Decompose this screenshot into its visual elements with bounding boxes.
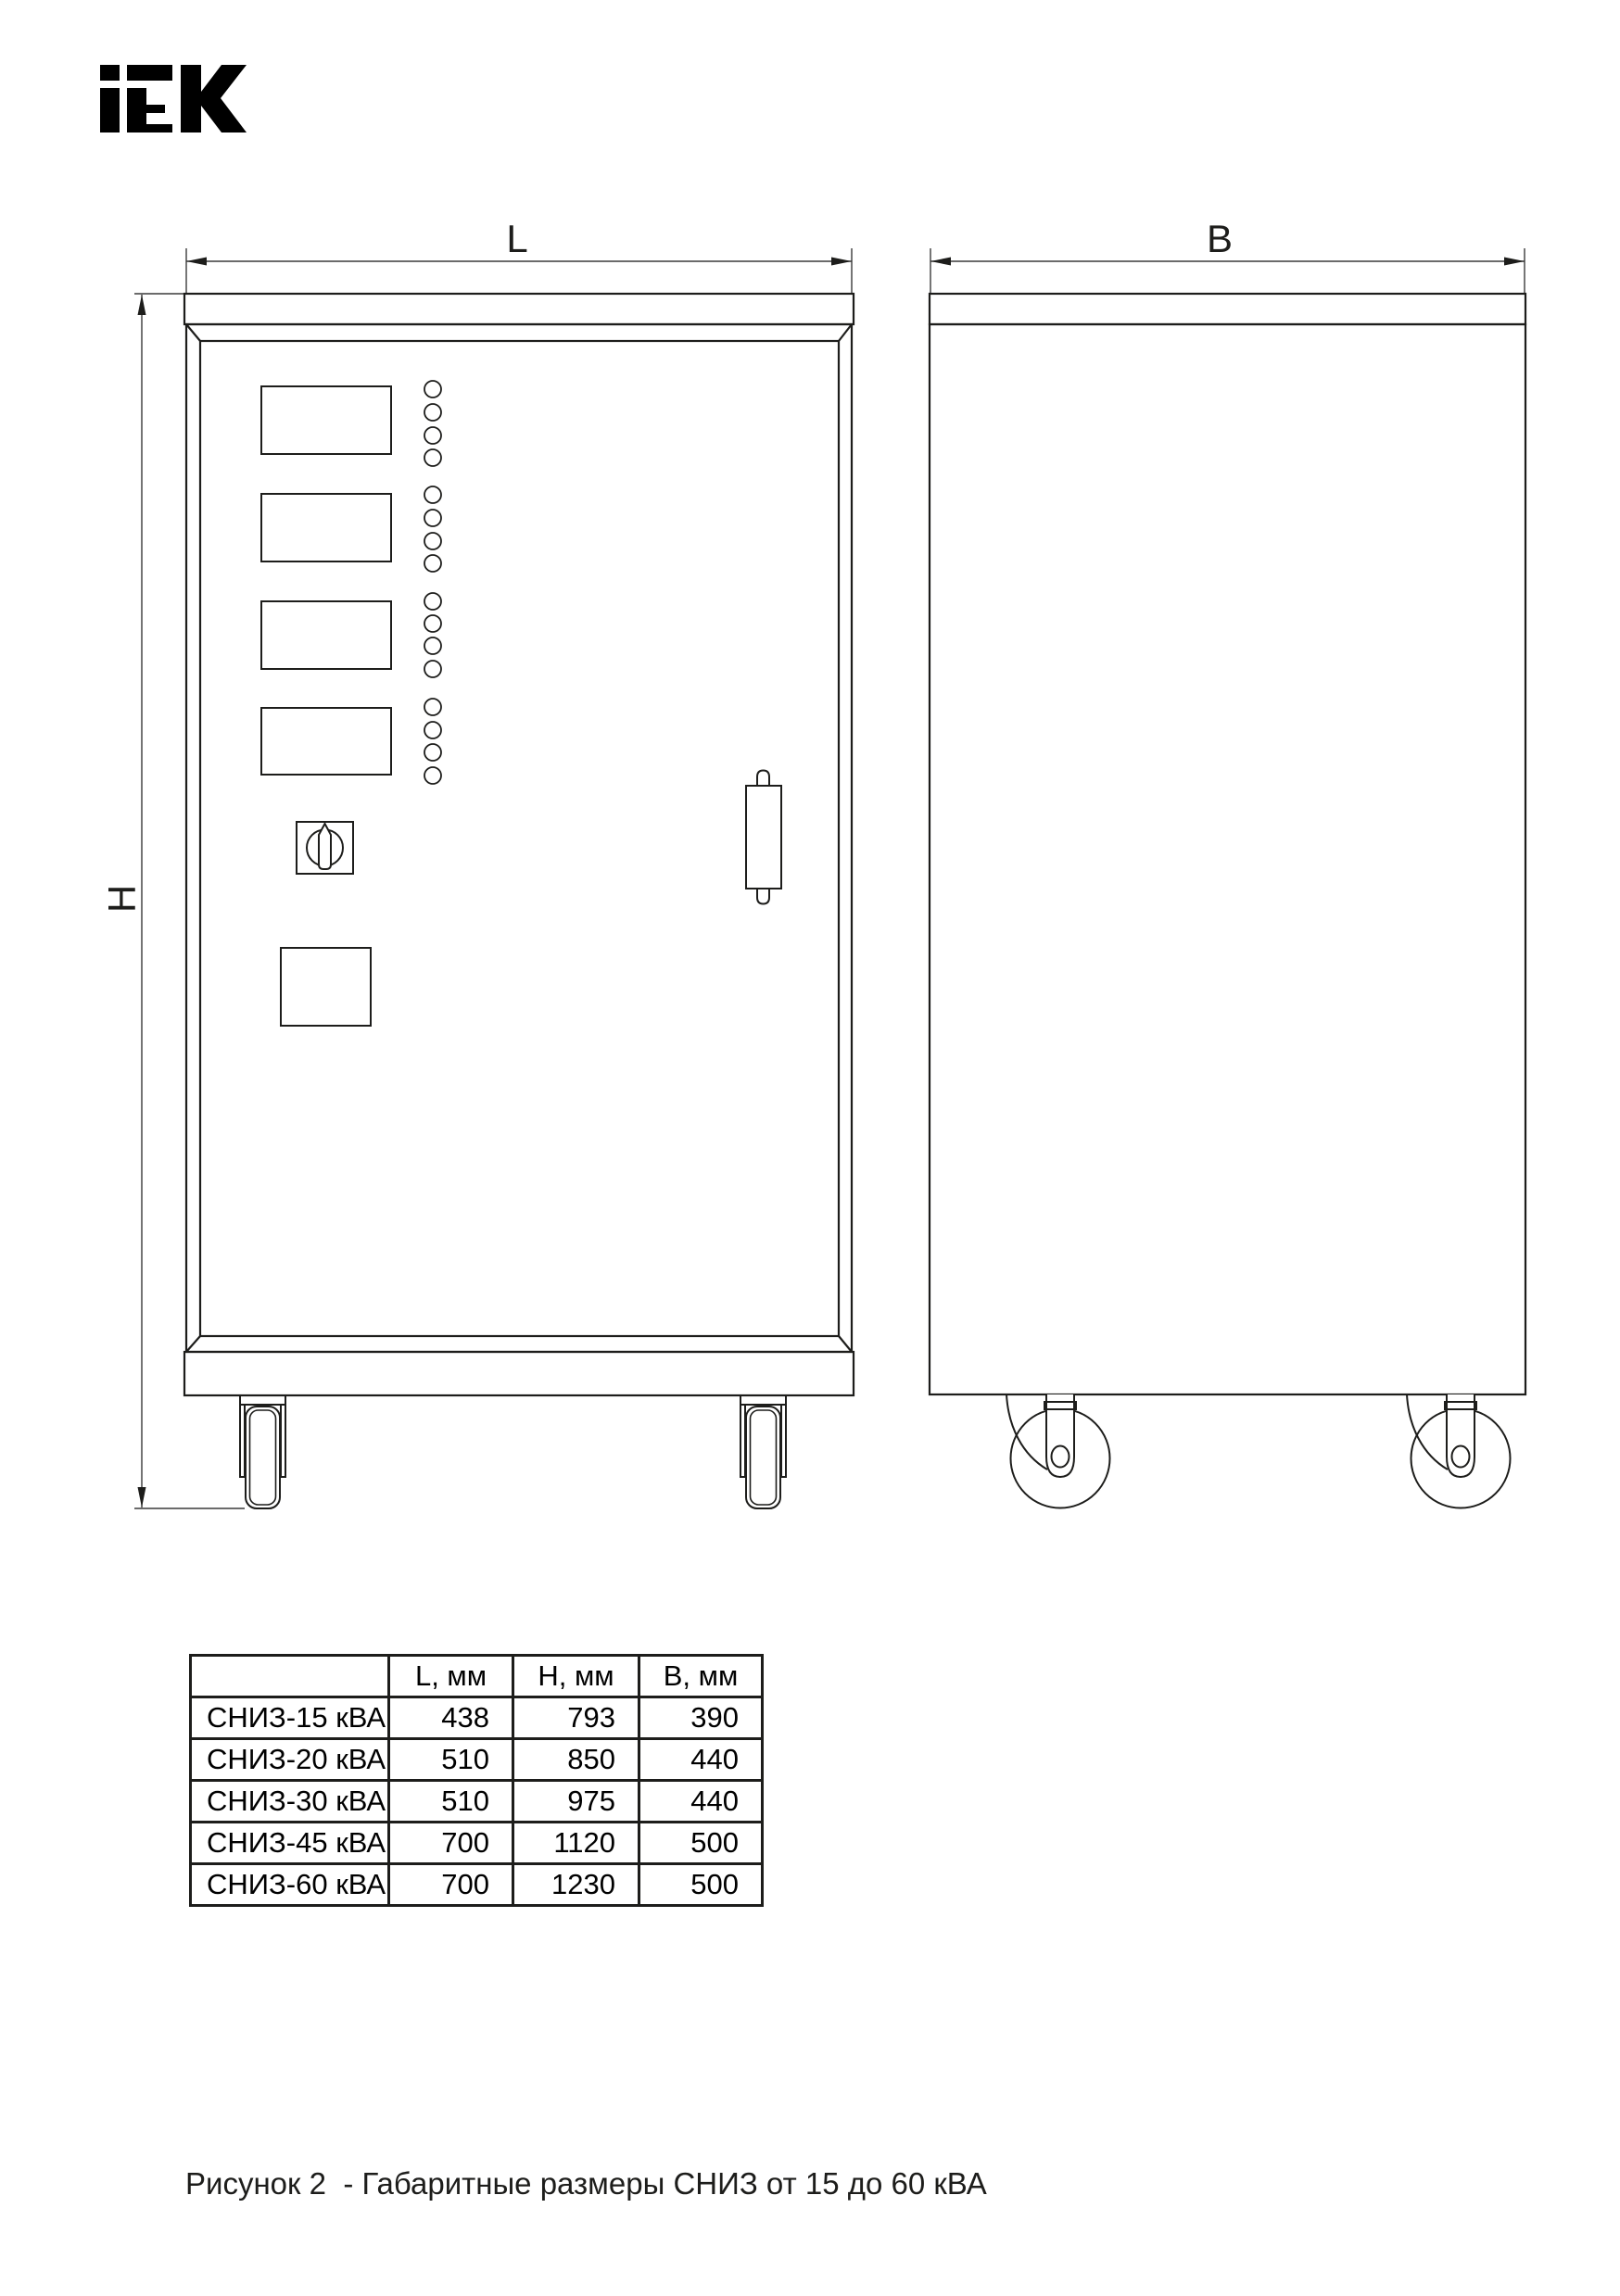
logo-i-dot [100,65,120,81]
l-value-cell: 510 [389,1781,513,1823]
frame-miter-bottom-left [186,1336,200,1352]
front-caster-left [240,1395,285,1508]
caster-axle [1052,1446,1069,1468]
table-header-row: L, мм H, мм B, мм [191,1656,763,1697]
caster-wheel [246,1407,280,1508]
led-indicator [424,699,441,715]
dimensions-table: L, мм H, мм B, мм СНИЗ-15 кВА 438 793 39… [189,1654,764,1907]
width-dimension: B [930,217,1525,293]
b-arrow-left [930,258,951,266]
front-top-cap [184,294,854,324]
caster-fork-leg [781,1405,786,1477]
logo-k [181,65,247,132]
technical-drawing-page: L B H [0,0,1620,2296]
led-indicator [424,637,441,654]
h-arrow-top [138,295,146,315]
table-row: СНИЗ-30 кВА 510 975 440 [191,1781,763,1823]
door-handle-top-tab [757,771,769,788]
dimension-drawing: L B H [0,0,1620,1575]
breaker-window-4 [261,708,391,775]
logo-i-stem [100,88,120,132]
caster-wheel [746,1407,780,1508]
breaker-windows [261,386,391,775]
height-label: H [100,885,144,913]
table-row: СНИЗ-60 кВА 700 1230 500 [191,1864,763,1906]
side-body [930,324,1525,1394]
side-caster-right [1407,1394,1511,1508]
l-arrow-left [186,258,207,266]
col-header-l: L, мм [389,1656,513,1697]
b-arrow-right [1504,258,1525,266]
frame-miter-top-right [839,324,852,341]
caster-fork-leg [281,1405,285,1477]
rotary-switch-knob [319,824,331,869]
led-indicator [424,533,441,549]
b-value-cell: 440 [639,1781,763,1823]
led-indicator [424,381,441,397]
breaker-window-2 [261,494,391,561]
height-dimension: H [100,294,245,1508]
b-value-cell: 500 [639,1823,763,1864]
side-top-cap [930,294,1525,324]
caster-fork-leg [240,1405,245,1477]
model-cell: СНИЗ-60 кВА [191,1864,389,1906]
model-cell: СНИЗ-30 кВА [191,1781,389,1823]
l-value-cell: 700 [389,1823,513,1864]
led-indicator [424,593,441,610]
l-value-cell: 438 [389,1697,513,1739]
breaker-window-1 [261,386,391,454]
iek-logo [100,65,247,132]
b-value-cell: 390 [639,1697,763,1739]
led-indicator [424,615,441,632]
col-header-b: B, мм [639,1656,763,1697]
led-indicator [424,486,441,503]
led-indicators [424,381,441,784]
h-value-cell: 850 [513,1739,639,1781]
h-value-cell: 975 [513,1781,639,1823]
caster-fork-leg [740,1405,745,1477]
front-base [184,1352,854,1395]
caster-plate [240,1395,285,1405]
led-indicator [424,744,441,761]
h-value-cell: 793 [513,1697,639,1739]
led-indicator [424,427,441,444]
logo-e-body [127,88,172,132]
figure-caption: Рисунок 2 - Габаритные размеры СНИЗ от 1… [185,2166,987,2201]
l-value-cell: 510 [389,1739,513,1781]
caster-swivel [1407,1394,1448,1470]
side-caster-left [1006,1394,1110,1508]
caster-axle [1452,1446,1470,1468]
caster-swivel [1006,1394,1047,1470]
front-caster-right [740,1395,786,1508]
led-indicator [424,661,441,677]
frame-miter-top-left [186,324,200,341]
led-indicator [424,722,441,738]
b-value-cell: 440 [639,1739,763,1781]
h-value-cell: 1120 [513,1823,639,1864]
front-view [184,294,854,1508]
rotary-switch [297,822,353,874]
door-handle-bottom-tab [757,888,769,904]
caster-wheel-inner [751,1410,777,1505]
model-cell: СНИЗ-20 кВА [191,1739,389,1781]
table-row: СНИЗ-15 кВА 438 793 390 [191,1697,763,1739]
led-indicator [424,555,441,572]
corner-cell [191,1656,389,1697]
col-header-h: H, мм [513,1656,639,1697]
side-view [930,294,1525,1508]
table-row: СНИЗ-45 кВА 700 1120 500 [191,1823,763,1864]
led-indicator [424,404,441,421]
model-cell: СНИЗ-45 кВА [191,1823,389,1864]
width-label: B [1207,217,1233,260]
length-dimension: L [186,217,852,293]
display-window [281,948,371,1026]
logo-e-top [127,65,172,81]
front-body-outer [186,324,852,1352]
frame-miter-bottom-right [839,1336,852,1352]
h-arrow-bottom [138,1487,146,1508]
led-indicator [424,510,441,526]
h-value-cell: 1230 [513,1864,639,1906]
breaker-window-3 [261,601,391,669]
l-value-cell: 700 [389,1864,513,1906]
caster-plate [740,1395,786,1405]
model-cell: СНИЗ-15 кВА [191,1697,389,1739]
l-arrow-right [831,258,852,266]
door-handle-body [746,786,781,889]
led-indicator [424,767,441,784]
table-row: СНИЗ-20 кВА 510 850 440 [191,1739,763,1781]
length-label: L [506,217,527,260]
door-handle [746,771,781,904]
caster-wheel-inner [250,1410,276,1505]
led-indicator [424,449,441,466]
b-value-cell: 500 [639,1864,763,1906]
